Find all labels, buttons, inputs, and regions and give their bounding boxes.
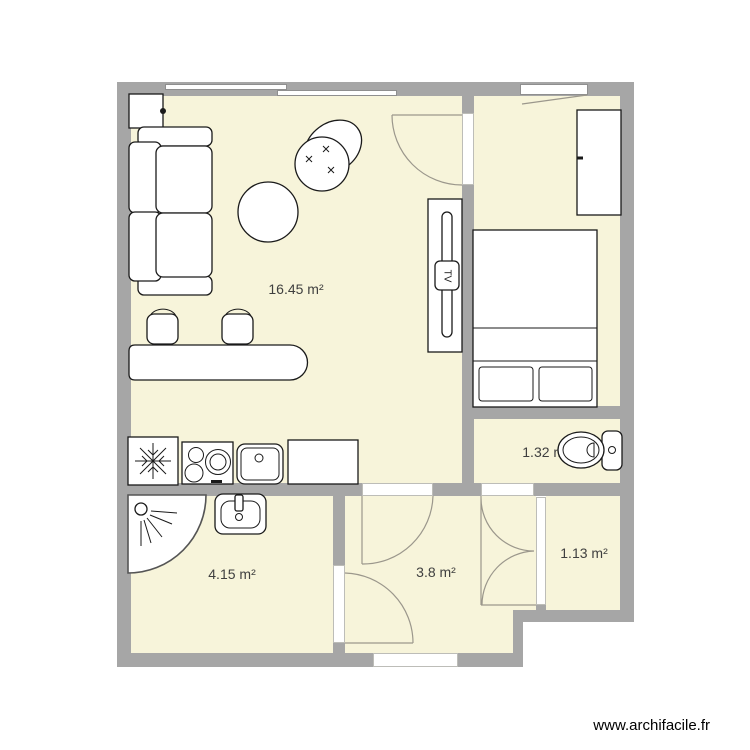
room-label-bathroom: 4.15 m² bbox=[208, 566, 255, 582]
wall-under-storage bbox=[513, 610, 634, 622]
wall-left bbox=[117, 82, 131, 667]
room-label-hallway: 3.8 m² bbox=[416, 564, 456, 580]
wall-bedroom-wc bbox=[462, 406, 634, 419]
hallway-door-opening bbox=[362, 483, 433, 496]
room-label-storage: 1.13 m² bbox=[560, 545, 607, 561]
room-floor-hallway-lower bbox=[345, 610, 513, 653]
bedroom-window bbox=[520, 84, 588, 95]
bathroom-door-opening bbox=[333, 565, 345, 643]
room-label-wc: 1.32 m² bbox=[522, 444, 569, 460]
sliding-window-pane-left bbox=[165, 84, 287, 90]
room-label-bedroom: 5.85 m² bbox=[524, 242, 571, 258]
wall-right bbox=[620, 82, 634, 622]
wc-door-opening bbox=[481, 483, 534, 496]
bedroom-door-opening bbox=[462, 113, 474, 185]
sliding-window-pane-right bbox=[277, 90, 397, 96]
room-floor-hallway bbox=[345, 496, 536, 610]
entrance-opening bbox=[373, 653, 458, 667]
watermark: www.archifacile.fr bbox=[593, 717, 710, 734]
floor-plan: 16.45 m² 5.85 m² 1.32 m² 4.15 m² 3.8 m² … bbox=[0, 0, 750, 750]
storage-door-opening bbox=[536, 497, 546, 605]
wall-bottom bbox=[117, 653, 523, 667]
room-label-living: 16.45 m² bbox=[268, 281, 323, 297]
